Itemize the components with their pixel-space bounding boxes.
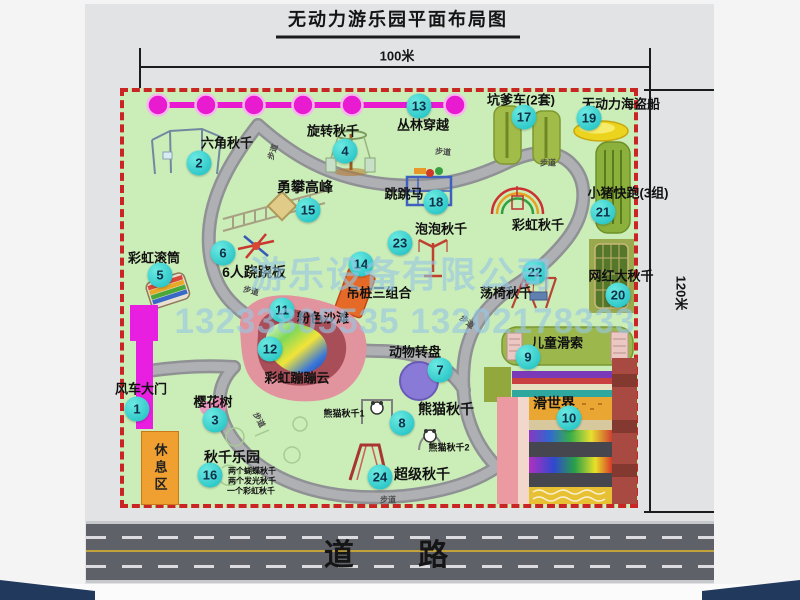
label-swing-park-note-3: 一个彩虹秋千 xyxy=(227,486,275,497)
label-jumping-horse: 跳跳马 xyxy=(384,184,423,203)
watermark-company: 游乐设备有限公司 xyxy=(250,246,554,298)
badge-rotating-swing: 4 xyxy=(333,139,358,164)
features-layer: 风车大门1六角秋千2樱花树3旋转秋千4彩虹滚筒56人跷跷板6动物转盘7熊猫秋千8… xyxy=(0,0,800,600)
label-windmill-gate: 风车大门 xyxy=(115,379,167,398)
path-label-3: 步道 xyxy=(540,158,556,169)
path-label-1: 步道 xyxy=(265,143,280,162)
label-rainbow-bounce-cloud: 彩虹蹦蹦云 xyxy=(264,368,329,387)
label-animal-turntable: 动物转盘 xyxy=(389,342,441,361)
badge-panda-swing: 8 xyxy=(390,411,415,436)
badge-swing-park: 16 xyxy=(198,463,223,488)
watermark-phone: 13233805535 13202178333 xyxy=(175,302,636,342)
badge-pit-cars: 17 xyxy=(512,105,537,130)
label-rainbow-swing: 彩虹秋千 xyxy=(512,215,564,234)
badge-hexagon-swing: 2 xyxy=(187,151,212,176)
label-big-net-swing: 网红大秋千 xyxy=(588,266,653,285)
path-label-7: 步道 xyxy=(380,495,396,506)
badge-windmill-gate: 1 xyxy=(125,397,150,422)
badge-piggy-run: 21 xyxy=(591,200,616,225)
badge-pirate-ship: 19 xyxy=(577,106,602,131)
playground-plan: 无动力游乐园平面布局图 100米 120米 xyxy=(0,0,800,600)
badge-kids-zipline: 9 xyxy=(516,345,541,370)
label-piggy-run: 小猪快跑(3组) xyxy=(588,183,669,202)
label-bubble-swing: 泡泡秋千 xyxy=(415,219,467,238)
path-label-2: 步道 xyxy=(435,146,452,158)
badge-animal-turntable: 7 xyxy=(428,358,453,383)
badge-rainbow-roller: 5 xyxy=(148,263,173,288)
label-super-swing: 超级秋千 xyxy=(394,464,450,484)
label-hexagon-swing: 六角秋千 xyxy=(201,133,253,152)
badge-super-swing: 24 xyxy=(368,465,393,490)
badge-six-person-seesaw: 6 xyxy=(211,241,236,266)
label-rotating-swing: 旋转秋千 xyxy=(307,121,359,140)
path-label-6: 步道 xyxy=(250,410,267,429)
label-panda-swing-1: 熊猫秋千1 xyxy=(323,407,364,420)
badge-jumping-horse: 18 xyxy=(424,190,449,215)
badge-slide-world: 10 xyxy=(557,406,582,431)
label-panda-swing-2: 熊猫秋千2 xyxy=(428,441,469,454)
badge-cherry-tree: 3 xyxy=(203,408,228,433)
badge-climbing-peak: 15 xyxy=(296,198,321,223)
label-climbing-peak: 勇攀高峰 xyxy=(277,177,333,197)
badge-jungle-crossing: 13 xyxy=(407,94,432,119)
label-panda-swing: 熊猫秋千 xyxy=(418,399,474,419)
